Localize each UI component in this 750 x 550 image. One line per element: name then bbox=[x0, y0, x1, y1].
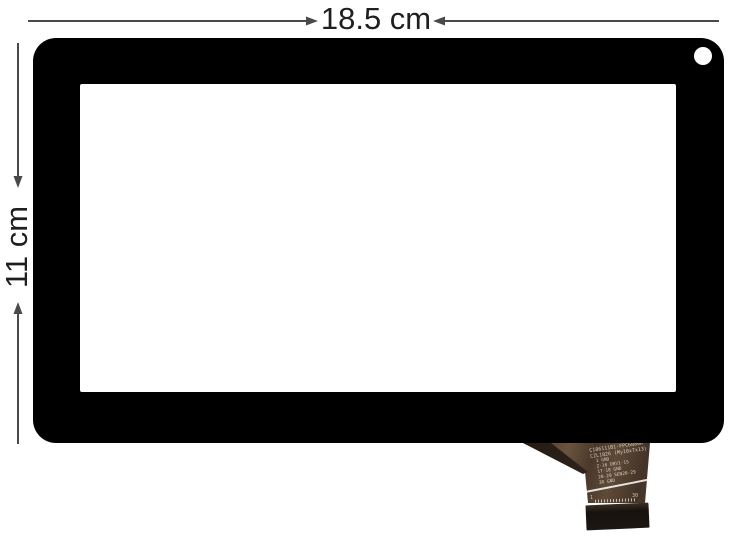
camera-hole bbox=[694, 47, 712, 65]
tablet-bezel bbox=[33, 38, 724, 443]
product-dimension-image: 18.5 cm 11 cm C186111B1-FPC6880R CZL1826… bbox=[0, 0, 750, 550]
flex-cable: C186111B1-FPC6880R CZL1826 (My10x7x13) 1… bbox=[515, 440, 667, 540]
fpc-connector bbox=[585, 503, 649, 531]
screen-area bbox=[80, 84, 676, 392]
width-dimension-label: 18.5 cm bbox=[320, 2, 432, 36]
height-dimension-label: 11 cm bbox=[0, 192, 34, 302]
cable-pin-first-label: 1 bbox=[590, 495, 593, 501]
